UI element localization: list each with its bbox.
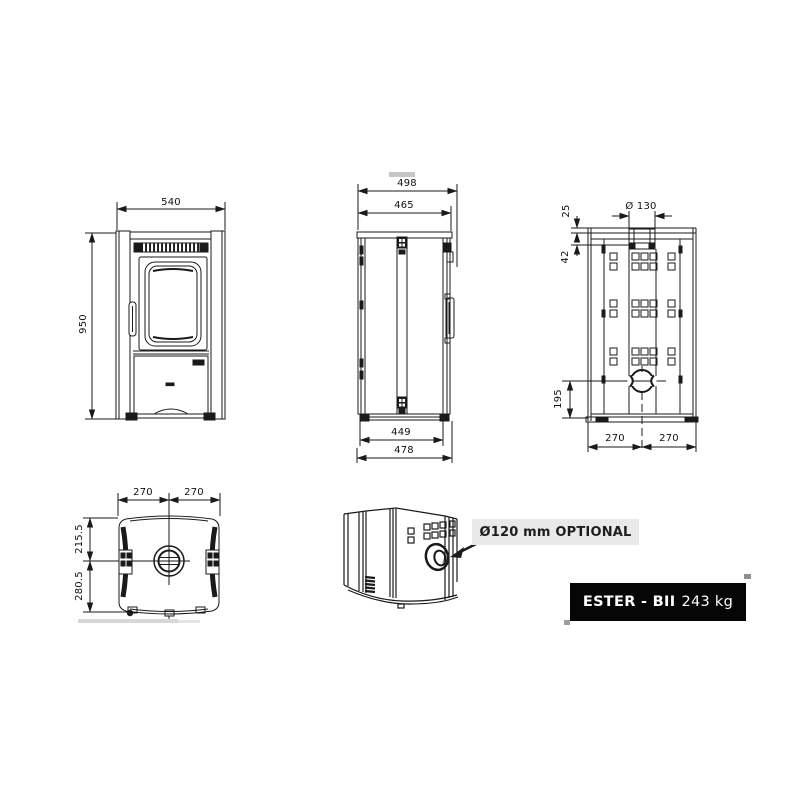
dim-top-flue-front: 215.5 bbox=[75, 524, 85, 554]
dim-top-half-left: 270 bbox=[133, 488, 153, 498]
model-name: ESTER - BII bbox=[583, 594, 676, 610]
dim-side-depth-top: 465 bbox=[394, 201, 414, 211]
model-weight: 243 kg bbox=[681, 594, 733, 610]
dim-front-height: 950 bbox=[79, 314, 89, 334]
front-view bbox=[85, 202, 225, 420]
dim-rear-offset-42: 42 bbox=[561, 250, 571, 263]
model-plate: ESTER - BII 243 kg bbox=[570, 583, 746, 621]
dim-top-half-right: 270 bbox=[184, 488, 204, 498]
dim-side-depth-overall-top: 498 bbox=[397, 179, 417, 189]
dim-side-depth-bottom: 449 bbox=[391, 428, 411, 438]
scan-artifact bbox=[178, 620, 200, 623]
optional-flue-callout: Ø120 mm OPTIONAL bbox=[472, 519, 639, 545]
scan-artifact bbox=[389, 172, 415, 177]
optional-flue-callout-text: Ø120 mm OPTIONAL bbox=[479, 525, 631, 540]
dim-rear-inlet-height: 195 bbox=[554, 389, 564, 409]
side-view bbox=[357, 184, 457, 463]
scan-artifact bbox=[744, 574, 751, 579]
dim-rear-half-left: 270 bbox=[605, 434, 625, 444]
scan-artifact bbox=[78, 619, 178, 623]
perspective-view bbox=[344, 508, 492, 608]
rear-view bbox=[562, 211, 698, 452]
dim-side-depth-overall-bottom: 478 bbox=[394, 446, 414, 456]
dim-top-flue-rear: 280.5 bbox=[75, 571, 85, 601]
dim-rear-flue-diameter: Ø 130 bbox=[625, 202, 656, 212]
dim-rear-half-right: 270 bbox=[659, 434, 679, 444]
dim-rear-offset-25: 25 bbox=[562, 204, 572, 217]
scan-artifact bbox=[564, 620, 570, 625]
drawing-sheet: 540 950 498 465 449 478 Ø 130 25 42 195 … bbox=[0, 0, 800, 800]
rear-vent-holes bbox=[610, 253, 675, 365]
technical-drawing-canvas bbox=[0, 0, 800, 800]
top-view bbox=[83, 493, 220, 619]
dim-front-width: 540 bbox=[161, 198, 181, 208]
